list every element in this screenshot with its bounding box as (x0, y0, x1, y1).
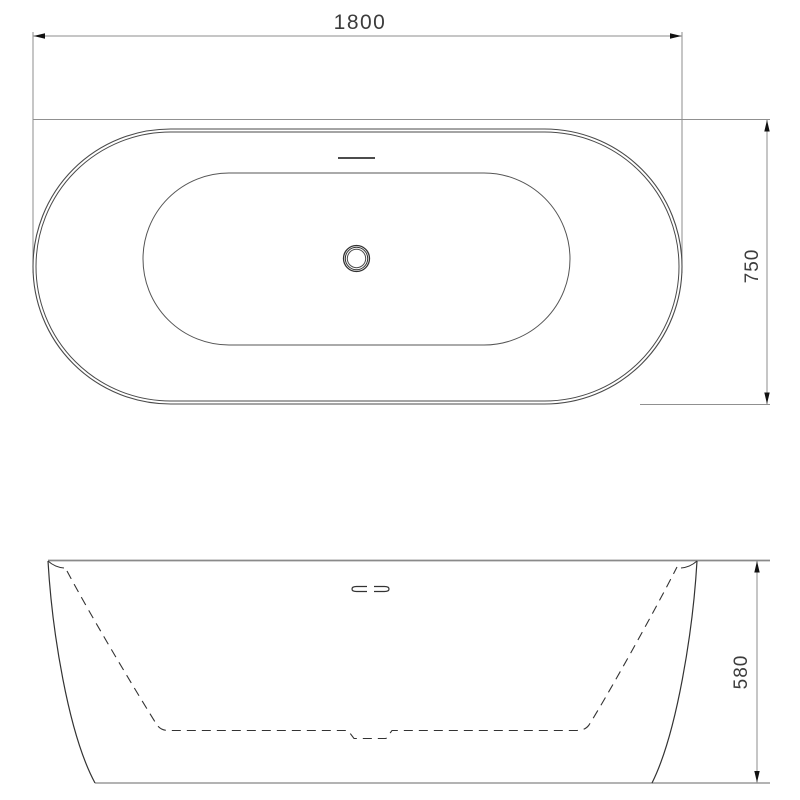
dim-580-arrow-top (754, 561, 759, 573)
dim-width-label: 1800 (327, 13, 393, 33)
front-left-rim-lip (48, 561, 64, 568)
front-view (48, 561, 770, 784)
rim-outer-outline (33, 129, 682, 404)
overflow-slot-left (352, 587, 367, 592)
dim-1800-arrow-right (670, 33, 682, 38)
dim-height-label: 580 (732, 641, 752, 703)
front-left-profile (48, 561, 95, 783)
top-view (33, 32, 770, 405)
dim-depth-label: 750 (743, 235, 763, 297)
dim-1800-arrow-left (34, 33, 46, 38)
dim-580-arrow-bottom (754, 771, 759, 783)
rim-inner-outline (36, 132, 679, 401)
dim-750-arrow-top (764, 120, 769, 132)
front-right-rim-lip (681, 561, 697, 568)
dim-750-arrow-bottom (764, 393, 769, 405)
linework (0, 0, 800, 800)
front-interior-hidden-line (67, 567, 677, 739)
front-right-profile (652, 561, 697, 783)
drain-mid-ring (345, 247, 367, 269)
overflow-slot-right (374, 587, 389, 592)
drain-inner-circle (347, 249, 365, 267)
drawing-sheet: 1800 750 580 (0, 0, 800, 800)
basin-outline (143, 173, 570, 345)
